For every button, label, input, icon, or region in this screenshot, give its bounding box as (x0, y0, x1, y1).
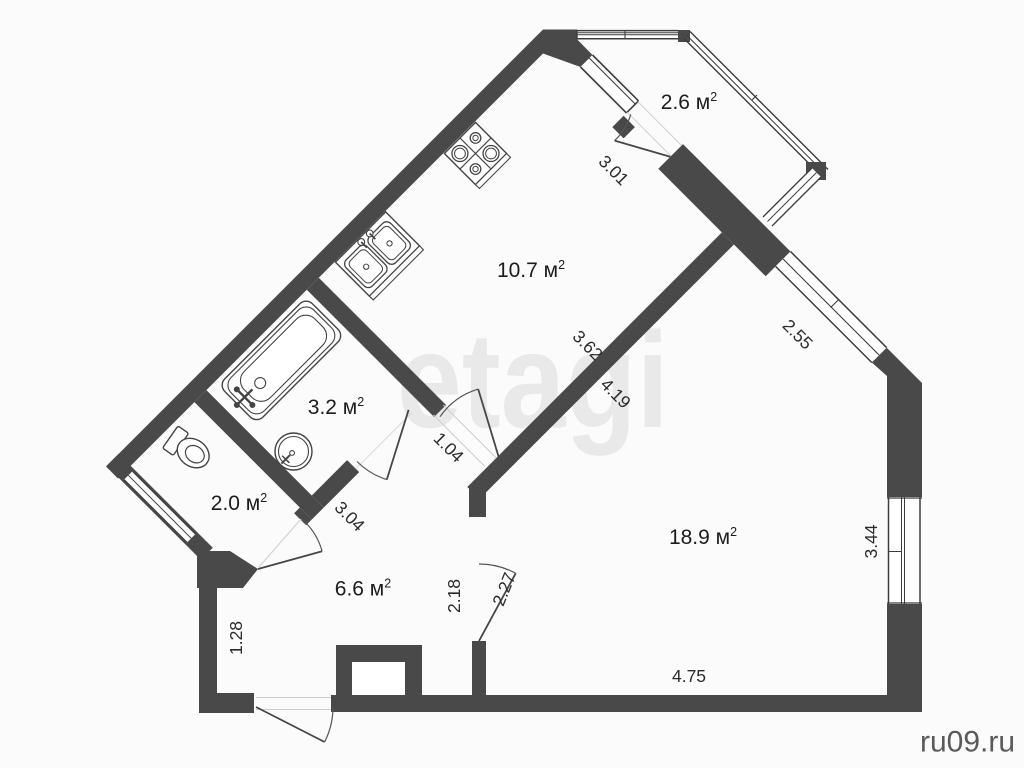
svg-text:6.6 м2: 6.6 м2 (335, 577, 391, 601)
svg-text:10.7 м2: 10.7 м2 (497, 258, 565, 282)
svg-text:2.6 м2: 2.6 м2 (661, 90, 717, 114)
svg-text:3.44: 3.44 (861, 524, 881, 558)
svg-text:3.2 м2: 3.2 м2 (308, 395, 364, 419)
svg-text:2.0 м2: 2.0 м2 (211, 491, 267, 515)
svg-text:18.9 м2: 18.9 м2 (669, 525, 737, 549)
svg-text:1.28: 1.28 (226, 621, 246, 655)
svg-text:2.18: 2.18 (444, 579, 464, 613)
svg-text:ru09.ru: ru09.ru (920, 726, 1015, 759)
svg-text:4.75: 4.75 (672, 666, 706, 686)
